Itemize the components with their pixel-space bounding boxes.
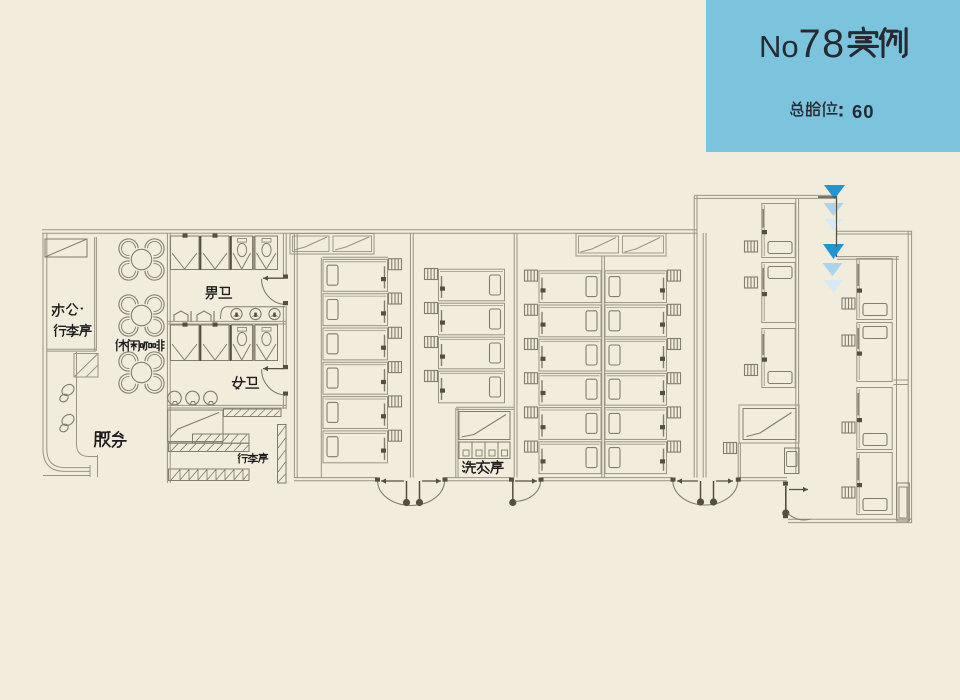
svg-text:No78: No78 [759,22,846,66]
svg-text:60: 60 [852,101,875,122]
